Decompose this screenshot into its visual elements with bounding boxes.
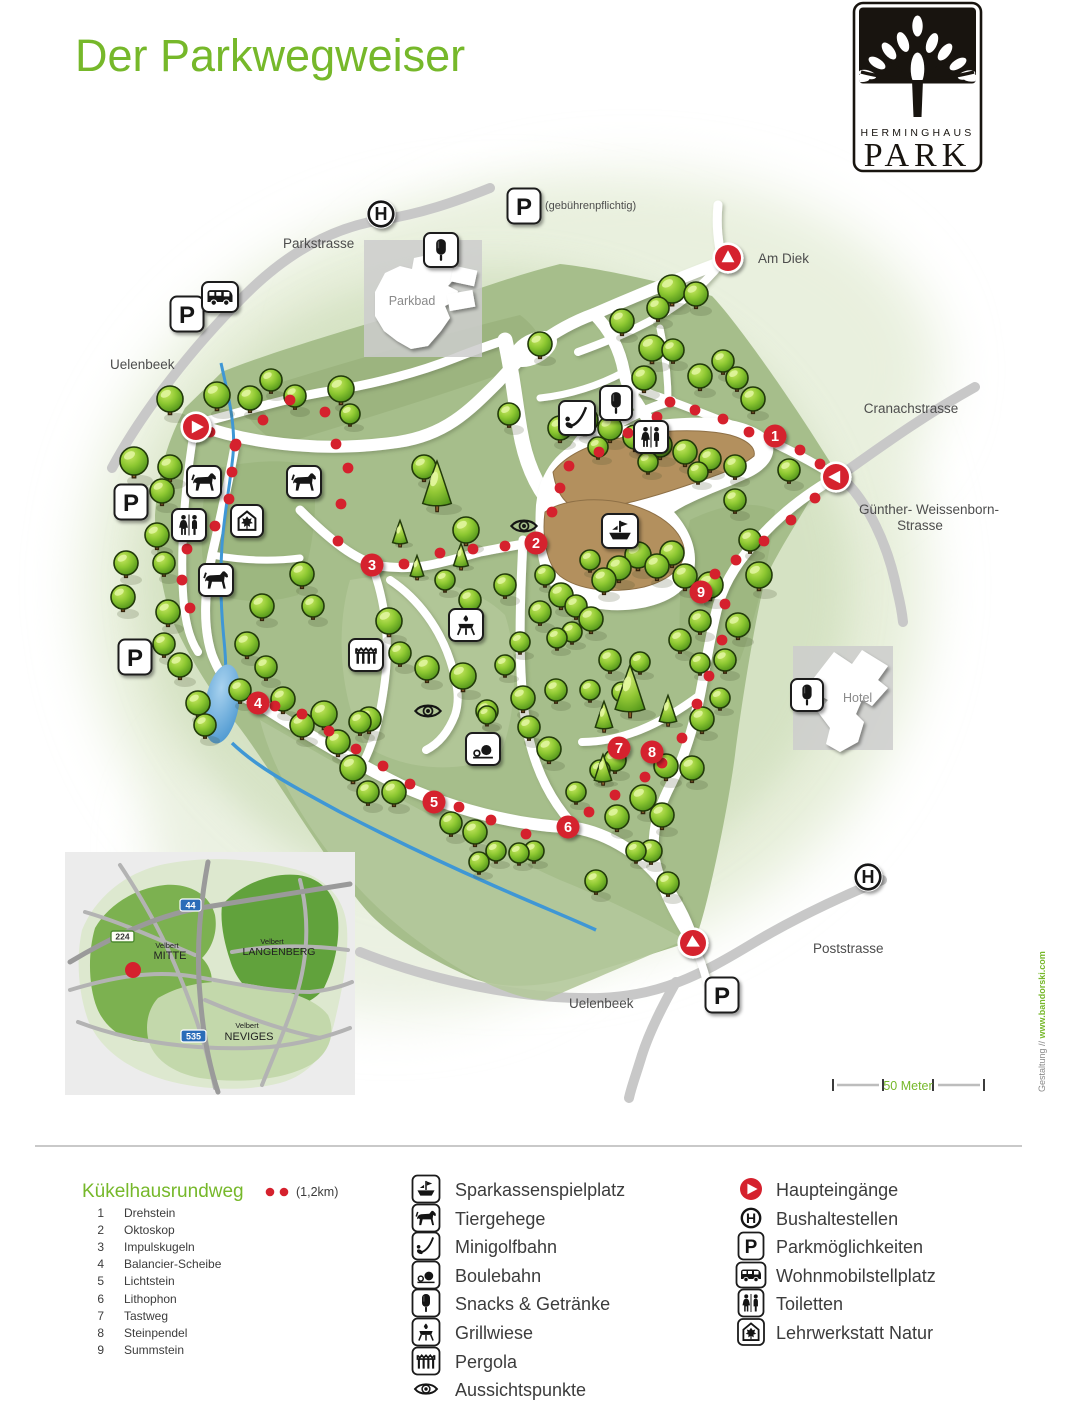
svg-text:(gebührenpflichtig): (gebührenpflichtig)	[545, 200, 636, 212]
svg-text:PARK: PARK	[864, 137, 972, 174]
svg-text:Velbert: Velbert	[235, 1021, 259, 1030]
svg-text:224: 224	[115, 932, 129, 942]
svg-text:MITTE: MITTE	[154, 950, 187, 962]
svg-text:1: 1	[771, 429, 779, 445]
svg-text:7: 7	[615, 741, 623, 757]
svg-text:H: H	[375, 204, 388, 224]
svg-text:8: 8	[648, 745, 656, 761]
svg-text:P: P	[516, 194, 532, 221]
svg-text:Velbert: Velbert	[155, 941, 179, 950]
svg-text:5: 5	[430, 795, 438, 811]
svg-text:P: P	[714, 983, 730, 1010]
svg-text:LANGENBERG: LANGENBERG	[243, 946, 316, 958]
svg-text:4: 4	[254, 696, 262, 712]
svg-text:9: 9	[697, 585, 705, 601]
svg-text:H: H	[746, 1210, 756, 1226]
svg-text:Uelenbeek: Uelenbeek	[569, 996, 634, 1011]
svg-text:P: P	[179, 302, 195, 329]
svg-text:Günther- Weissenborn-: Günther- Weissenborn-	[859, 502, 999, 517]
svg-text:Cranachstrasse: Cranachstrasse	[864, 401, 959, 416]
svg-text:P: P	[123, 490, 139, 517]
svg-text:Am Diek: Am Diek	[758, 251, 809, 266]
svg-text:Gestaltung // www.bandorski.co: Gestaltung // www.bandorski.com	[1037, 951, 1047, 1092]
svg-text:44: 44	[185, 901, 195, 911]
svg-text:Poststrasse: Poststrasse	[813, 941, 884, 956]
svg-text:Hotel: Hotel	[843, 691, 872, 705]
svg-text:P: P	[745, 1237, 758, 1258]
svg-text:Strasse: Strasse	[897, 518, 943, 533]
svg-text:6: 6	[564, 820, 572, 836]
svg-text:Uelenbeek: Uelenbeek	[110, 357, 175, 372]
svg-text:3: 3	[368, 558, 376, 574]
svg-text:NEVIGES: NEVIGES	[225, 1031, 274, 1043]
svg-text:Parkstrasse: Parkstrasse	[283, 236, 354, 251]
svg-text:P: P	[127, 645, 143, 672]
svg-text:50 Meter: 50 Meter	[883, 1079, 932, 1093]
svg-text:535: 535	[186, 1032, 201, 1042]
svg-text:Velbert: Velbert	[260, 937, 284, 946]
svg-text:2: 2	[532, 536, 540, 552]
svg-text:Parkbad: Parkbad	[389, 294, 436, 308]
svg-text:H: H	[862, 867, 875, 887]
